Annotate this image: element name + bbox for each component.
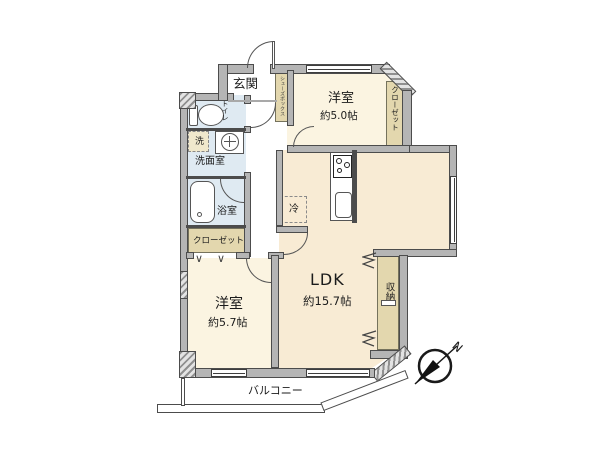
bedroom1-size: 約5.0帖	[320, 111, 358, 122]
shoe-box-label: シューズボックス	[279, 76, 284, 116]
storage-zigzag-icon	[362, 330, 377, 347]
entrance-door-arc	[247, 41, 274, 68]
wall	[271, 255, 279, 368]
window-ldk	[306, 369, 370, 377]
wall	[180, 95, 188, 378]
bedroom2-label: 洋室	[215, 297, 243, 311]
bathtub	[190, 181, 215, 223]
wall	[186, 128, 246, 131]
closet-left-folddoor-icon: ∨	[195, 253, 203, 264]
window-bedroom2	[211, 369, 247, 377]
wall	[352, 150, 357, 223]
washroom-label: 洗面室	[195, 157, 225, 167]
floor-plan: シューズボックス クローゼット クローゼット 収納 洗 冷	[0, 0, 600, 450]
wall	[218, 64, 228, 101]
stove-burner-3	[337, 168, 342, 173]
vanity-sink-cross-h	[224, 141, 236, 142]
compass-north-label: N	[449, 339, 465, 355]
stove-burner-1	[336, 158, 342, 164]
refrigerator-label: 冷	[289, 205, 299, 215]
wall	[402, 90, 412, 152]
entrance-label: 玄関	[233, 78, 258, 91]
closet-left: クローゼット	[188, 228, 245, 253]
balcony-rail-left	[181, 378, 185, 406]
bathroom-label: 浴室	[217, 207, 237, 217]
laundry-box: 洗	[188, 131, 209, 152]
storage-shelf	[381, 300, 396, 306]
storage-zigzag-icon	[362, 252, 377, 269]
wall	[186, 252, 194, 259]
entrance-step-line	[228, 100, 277, 102]
storage: 収納	[377, 253, 399, 350]
ldk-size: 約15.7帖	[303, 296, 352, 308]
closet-right: クローゼット	[386, 81, 403, 147]
closet-right-label: クローゼット	[391, 86, 399, 131]
refrigerator-space: 冷	[280, 196, 307, 223]
kitchen-sink	[335, 192, 352, 218]
toilet-door-arc	[251, 103, 276, 128]
wall	[276, 150, 283, 226]
wall-hatch-top-left	[179, 92, 196, 109]
ldk-label: LDK	[310, 272, 345, 288]
vanity-sink-cross-v	[229, 136, 230, 147]
balcony-label: バルコニー	[248, 385, 303, 396]
closet-left-label: クローゼット	[193, 237, 244, 246]
wall	[373, 249, 457, 257]
storage-label: 収納	[384, 282, 394, 301]
vanity-sink	[221, 133, 239, 151]
laundry-label: 洗	[195, 138, 204, 147]
wall	[287, 70, 294, 126]
wall	[186, 225, 246, 228]
wall-hatch-left-mid	[180, 271, 188, 299]
wall	[276, 226, 308, 233]
bathtub-drain	[197, 212, 202, 217]
toilet-label: トイレ	[221, 100, 228, 121]
wall	[244, 172, 251, 257]
entrance-door-leaf	[272, 41, 275, 69]
closet-left-folddoor-icon: ∨	[217, 253, 225, 264]
compass: N	[407, 334, 467, 394]
wall-hatch-bottom-left	[179, 351, 196, 378]
bedroom1-label: 洋室	[328, 92, 354, 105]
window-top	[306, 65, 372, 73]
stove-burner-2	[344, 162, 350, 168]
bedroom2-size: 約5.7帖	[208, 317, 248, 328]
window-right	[450, 176, 457, 244]
